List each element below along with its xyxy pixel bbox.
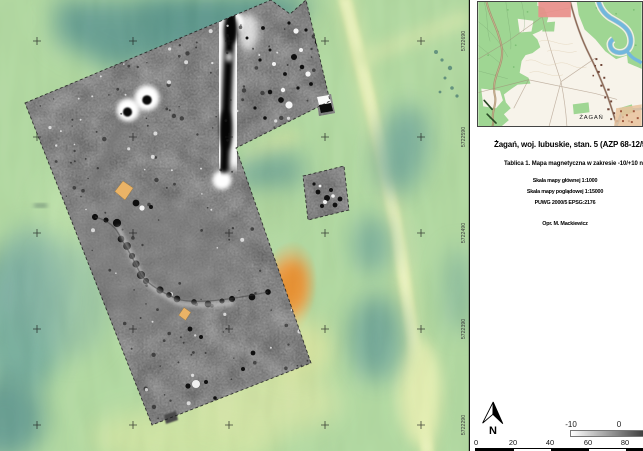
- svg-text:N: N: [489, 425, 497, 437]
- svg-text:5722590: 5722590: [461, 127, 467, 147]
- svg-text:ŻAGAŃ: ŻAGAŃ: [579, 114, 603, 121]
- svg-text:5722390: 5722390: [461, 319, 467, 339]
- svg-text:5722290: 5722290: [461, 415, 467, 435]
- svg-text:5722690: 5722690: [461, 31, 467, 51]
